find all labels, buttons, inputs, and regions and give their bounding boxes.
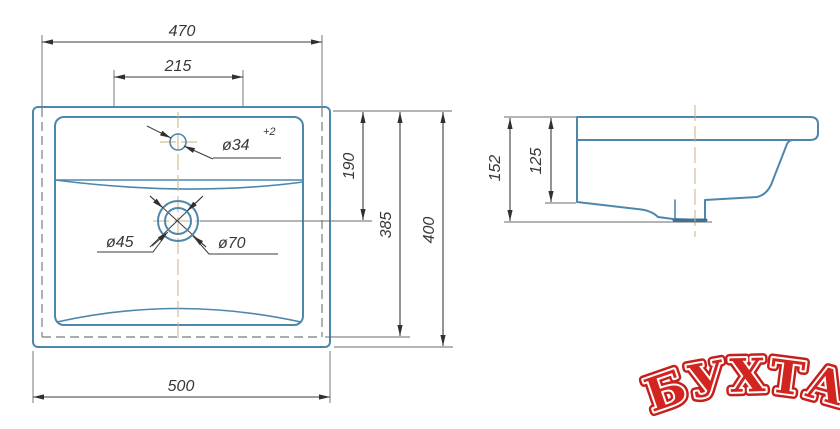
watermark-text: БУХТА bbox=[638, 348, 840, 423]
dim-label-215: 215 bbox=[164, 58, 192, 75]
basin-bottom-curve bbox=[57, 309, 301, 323]
drain-inner-label: ø45 bbox=[106, 234, 134, 251]
bowl-profile bbox=[577, 140, 793, 220]
faucet-hole-label: ø34 bbox=[222, 137, 250, 154]
dim-label-500: 500 bbox=[168, 378, 195, 395]
faucet-leader-arrow bbox=[147, 126, 171, 138]
side-view: 152 125 bbox=[487, 105, 818, 237]
dim-label-470: 470 bbox=[169, 23, 196, 40]
technical-drawing-page: ø34 +2 ø45 ø70 470 215 190 385 400 bbox=[0, 0, 840, 429]
washbasin-drawing: ø34 +2 ø45 ø70 470 215 190 385 400 bbox=[0, 0, 840, 429]
drain-outer-label: ø70 bbox=[218, 235, 246, 252]
dim-label-190: 190 bbox=[341, 153, 358, 180]
faucet-hole-tolerance-label: +2 bbox=[263, 126, 276, 138]
dim-label-152: 152 bbox=[487, 155, 504, 182]
dim-label-125: 125 bbox=[528, 148, 545, 175]
sink-outer-contour bbox=[33, 107, 330, 347]
dim-label-400: 400 bbox=[421, 217, 438, 244]
drain-inner-arrow bbox=[152, 232, 168, 246]
dim-label-385: 385 bbox=[378, 212, 395, 239]
watermark-logo: БУХТА БУХТА БУХТА bbox=[638, 348, 840, 423]
faucet-leader-arrow bbox=[184, 146, 213, 159]
watermark-text-fill: БУХТА bbox=[638, 348, 840, 423]
drain-outer-arrow bbox=[150, 196, 163, 208]
front-view: ø34 +2 ø45 ø70 470 215 190 385 400 bbox=[33, 23, 453, 403]
ledge-curve bbox=[55, 180, 303, 189]
deck-profile bbox=[577, 117, 818, 140]
